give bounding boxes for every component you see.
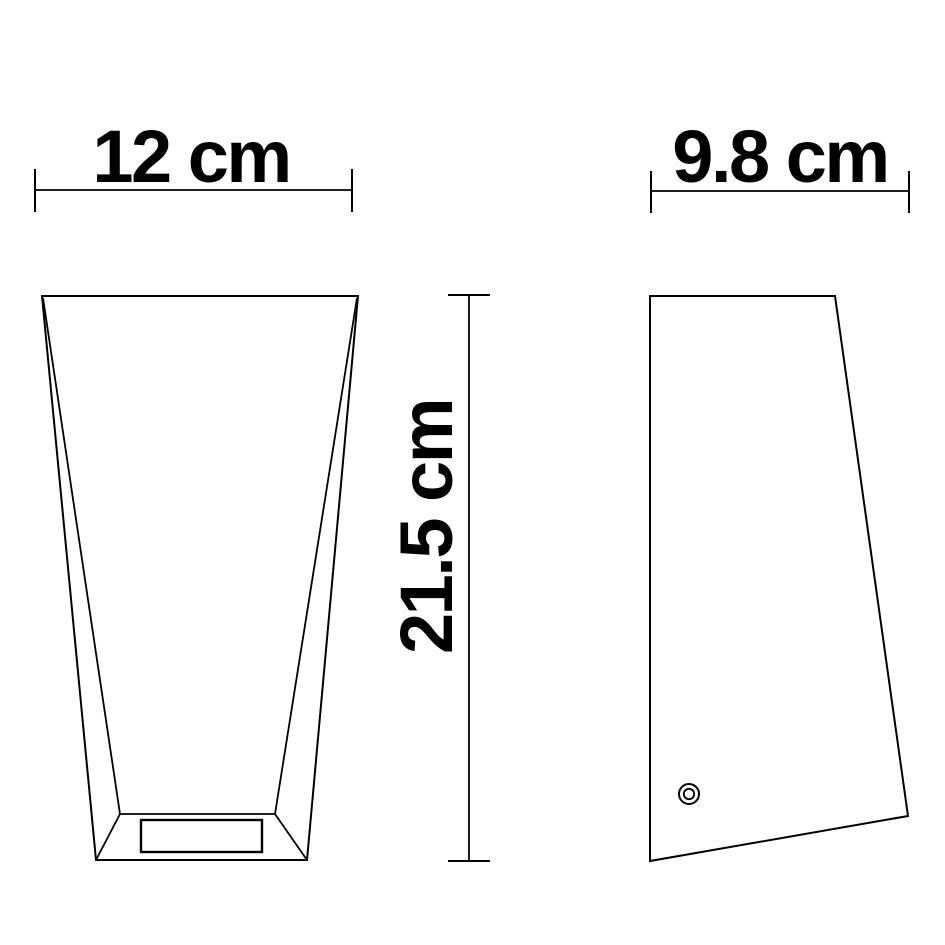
- side-view: [650, 296, 908, 861]
- front-view-outline: [42, 296, 358, 860]
- side-view-outline: [650, 296, 908, 861]
- front-view: [42, 296, 358, 860]
- height-dimension: 21.5 cm: [385, 295, 490, 861]
- width-dimension-label: 12 cm: [92, 115, 289, 198]
- dimension-diagram: 12 cm 9.8 cm 21.5 cm: [0, 0, 945, 945]
- height-dimension-label: 21.5 cm: [385, 400, 468, 654]
- depth-dimension: 9.8 cm: [651, 115, 909, 213]
- technical-drawing-svg: 12 cm 9.8 cm 21.5 cm: [0, 0, 945, 945]
- width-dimension: 12 cm: [35, 115, 352, 212]
- depth-dimension-label: 9.8 cm: [672, 115, 887, 198]
